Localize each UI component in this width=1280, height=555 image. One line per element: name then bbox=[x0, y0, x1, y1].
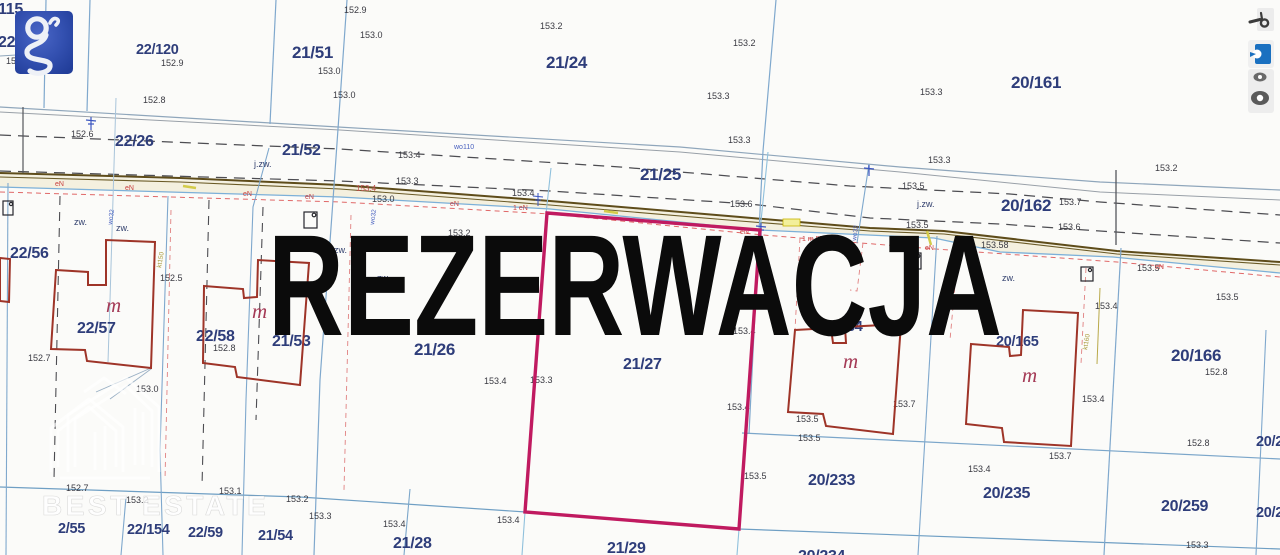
svg-text:20/235: 20/235 bbox=[983, 485, 1031, 502]
svg-text:zw.: zw. bbox=[116, 223, 129, 233]
svg-text:21/29: 21/29 bbox=[607, 540, 646, 555]
svg-text:153.6: 153.6 bbox=[1058, 222, 1081, 232]
svg-text:22/26: 22/26 bbox=[115, 133, 154, 150]
svg-text:153.0: 153.0 bbox=[318, 66, 341, 76]
svg-text:22/59: 22/59 bbox=[188, 525, 223, 541]
svg-text:153.4: 153.4 bbox=[356, 184, 377, 193]
svg-text:153.3: 153.3 bbox=[920, 87, 943, 97]
svg-text:eN: eN bbox=[243, 191, 252, 198]
svg-text:20/259: 20/259 bbox=[1161, 498, 1209, 515]
svg-text:153.0: 153.0 bbox=[372, 194, 395, 204]
svg-text:152.9: 152.9 bbox=[161, 58, 184, 68]
svg-text:153.5: 153.5 bbox=[744, 471, 767, 481]
svg-text:153.3: 153.3 bbox=[309, 511, 332, 521]
svg-text:21/52: 21/52 bbox=[282, 142, 321, 159]
svg-text:152.9: 152.9 bbox=[344, 5, 367, 15]
svg-text:21/25: 21/25 bbox=[640, 165, 681, 184]
svg-text:BEST ESTATE: BEST ESTATE bbox=[42, 490, 269, 521]
svg-text:20/161: 20/161 bbox=[1011, 73, 1061, 92]
svg-text:eN: eN bbox=[125, 185, 134, 192]
svg-text:152.8: 152.8 bbox=[143, 95, 166, 105]
svg-text:zw.: zw. bbox=[1002, 273, 1015, 283]
svg-text:m: m bbox=[1022, 363, 1037, 387]
svg-text:152.8: 152.8 bbox=[213, 343, 236, 353]
svg-text:153.5: 153.5 bbox=[902, 181, 925, 191]
svg-text:eN: eN bbox=[1155, 264, 1164, 271]
svg-text:153.3: 153.3 bbox=[728, 135, 751, 145]
svg-text:153.2: 153.2 bbox=[1155, 163, 1178, 173]
svg-text:153.4: 153.4 bbox=[512, 188, 535, 198]
svg-text:2/55: 2/55 bbox=[58, 521, 85, 537]
svg-text:153.0: 153.0 bbox=[360, 30, 383, 40]
svg-text:152.5: 152.5 bbox=[160, 273, 183, 283]
svg-text:20/2: 20/2 bbox=[1256, 434, 1280, 450]
svg-text:153.4: 153.4 bbox=[383, 519, 406, 529]
svg-text:152.6: 152.6 bbox=[71, 129, 94, 139]
svg-text:153.7: 153.7 bbox=[1059, 197, 1082, 207]
svg-text:21/28: 21/28 bbox=[393, 535, 432, 552]
svg-text:20/234: 20/234 bbox=[798, 548, 846, 555]
svg-text:153.3: 153.3 bbox=[396, 176, 419, 186]
svg-text:152.8: 152.8 bbox=[1205, 367, 1228, 377]
svg-text:153.4: 153.4 bbox=[484, 376, 507, 386]
svg-text:153.4: 153.4 bbox=[398, 150, 421, 160]
svg-text:153.5: 153.5 bbox=[796, 414, 819, 424]
svg-text:21/54: 21/54 bbox=[258, 528, 293, 544]
svg-text:20/233: 20/233 bbox=[808, 472, 856, 489]
svg-text:m: m bbox=[106, 293, 121, 317]
svg-text:20/166: 20/166 bbox=[1171, 346, 1221, 365]
svg-text:21/24: 21/24 bbox=[546, 53, 588, 72]
svg-text:eN: eN bbox=[305, 194, 314, 201]
svg-text:153.3: 153.3 bbox=[928, 155, 951, 165]
svg-text:22/120: 22/120 bbox=[136, 42, 179, 58]
svg-text:wo110: wo110 bbox=[453, 144, 474, 151]
svg-text:REZERWACJA: REZERWACJA bbox=[268, 205, 1002, 366]
svg-text:153.3: 153.3 bbox=[707, 91, 730, 101]
svg-text:21/51: 21/51 bbox=[292, 43, 333, 62]
svg-text:152.7: 152.7 bbox=[28, 353, 51, 363]
svg-text:eN: eN bbox=[55, 181, 64, 188]
svg-text:153.4: 153.4 bbox=[497, 515, 520, 525]
svg-text:153.3: 153.3 bbox=[1186, 540, 1209, 550]
svg-text:152.8: 152.8 bbox=[1187, 438, 1210, 448]
svg-text:153.2: 153.2 bbox=[733, 38, 756, 48]
svg-text:153.4: 153.4 bbox=[1082, 394, 1105, 404]
svg-text:153.2: 153.2 bbox=[540, 21, 563, 31]
svg-text:20/162: 20/162 bbox=[1001, 196, 1051, 215]
svg-text:zw.: zw. bbox=[74, 217, 87, 227]
svg-text:j.zw.: j.zw. bbox=[253, 159, 272, 169]
svg-text:153.7: 153.7 bbox=[1049, 451, 1072, 461]
svg-text:153.0: 153.0 bbox=[333, 90, 356, 100]
svg-text:153.4: 153.4 bbox=[968, 464, 991, 474]
svg-text:153.5: 153.5 bbox=[798, 433, 821, 443]
svg-text:m: m bbox=[252, 299, 267, 323]
svg-text:153.4: 153.4 bbox=[1095, 301, 1118, 311]
svg-text:153.2: 153.2 bbox=[286, 494, 309, 504]
svg-text:20/165: 20/165 bbox=[996, 334, 1039, 350]
svg-text:20/2: 20/2 bbox=[1256, 505, 1280, 521]
svg-text:153.5: 153.5 bbox=[1216, 292, 1239, 302]
svg-text:22/56: 22/56 bbox=[10, 245, 49, 262]
svg-text:22/57: 22/57 bbox=[77, 320, 116, 337]
svg-text:22/154: 22/154 bbox=[127, 522, 170, 538]
